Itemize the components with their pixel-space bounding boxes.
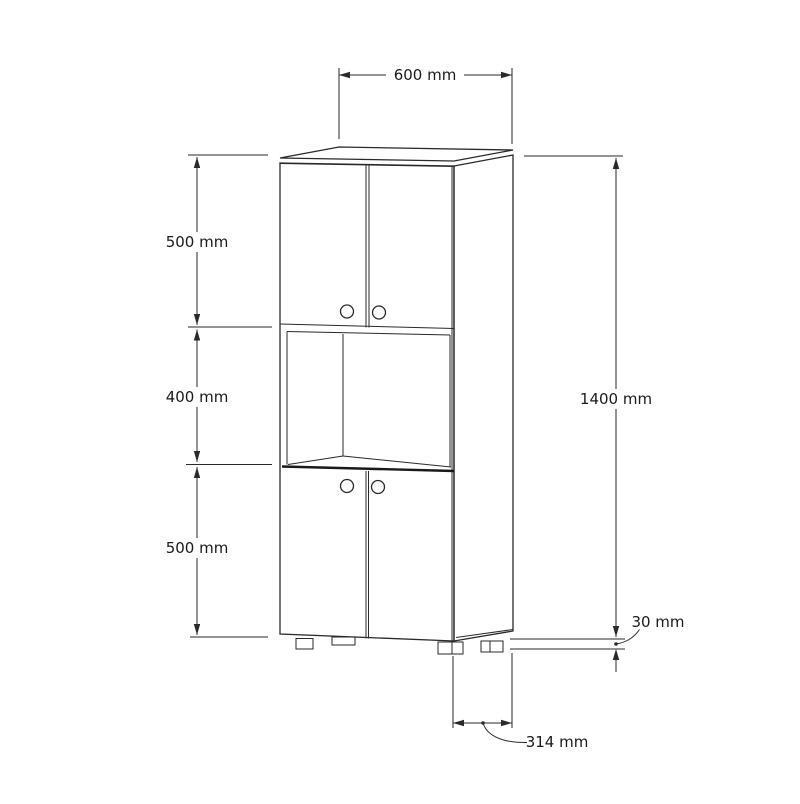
- cabinet-feet: [296, 637, 503, 654]
- door-knob: [341, 305, 354, 318]
- lower-cabinet-top-edge: [282, 467, 454, 472]
- dim-label-leg-height: 30 mm: [631, 613, 684, 631]
- dim-label-middle-height: 400 mm: [166, 388, 229, 406]
- foot-front-left: [296, 639, 313, 650]
- dim-depth: 314 mm: [453, 653, 588, 751]
- door-knob: [373, 306, 386, 319]
- arrowhead-left: [453, 720, 464, 726]
- arrowhead-right: [501, 72, 512, 78]
- arrowhead-down: [194, 314, 200, 325]
- foot-back-right: [481, 641, 503, 652]
- foot-back-left: [332, 637, 355, 645]
- lower-doors: [341, 471, 385, 639]
- arrowhead-right: [501, 720, 512, 726]
- upper-doors: [280, 166, 454, 329]
- dim-label-lower-height: 500 mm: [166, 539, 229, 557]
- arrowhead-down: [194, 624, 200, 635]
- cabinet-front-face: [280, 163, 454, 641]
- cabinet-side-face: [454, 155, 513, 641]
- alcove-floor-left-edge: [288, 456, 343, 465]
- technical-drawing-page: 500 mm 400 mm 500 mm 600 mm: [0, 0, 800, 800]
- dim-total-height: 1400 mm: [524, 156, 652, 637]
- dim-lower-section-height: 500 mm: [166, 467, 229, 635]
- dim-label-upper-height: 500 mm: [166, 233, 229, 251]
- leader-line: [483, 723, 527, 743]
- cabinet-top-face: [280, 147, 513, 161]
- foot-front-right: [438, 642, 463, 654]
- arrowhead-down: [613, 626, 619, 637]
- dim-leg-height: 30 mm: [510, 613, 685, 672]
- arrowhead-down: [194, 451, 200, 462]
- dim-label-width: 600 mm: [394, 66, 457, 84]
- dim-middle-section-height: 400 mm: [166, 330, 229, 463]
- cabinet-body: [280, 147, 513, 641]
- leader-line: [616, 630, 640, 645]
- open-shelf-compartment: [282, 332, 454, 472]
- upper-doors-bottom-edge: [280, 324, 454, 329]
- dim-left-chain: 500 mm 400 mm 500 mm: [166, 155, 272, 637]
- dim-label-depth: 314 mm: [526, 733, 589, 751]
- cabinet-technical-drawing: 500 mm 400 mm 500 mm 600 mm: [0, 0, 800, 800]
- dim-width: 600 mm: [339, 66, 512, 144]
- door-knob: [372, 481, 385, 494]
- dim-upper-section-height: 500 mm: [166, 157, 229, 325]
- door-knob: [341, 480, 354, 493]
- dim-label-total-height: 1400 mm: [580, 390, 652, 408]
- alcove-floor-back-edge: [343, 456, 451, 467]
- alcove-ceiling-edge: [287, 332, 450, 336]
